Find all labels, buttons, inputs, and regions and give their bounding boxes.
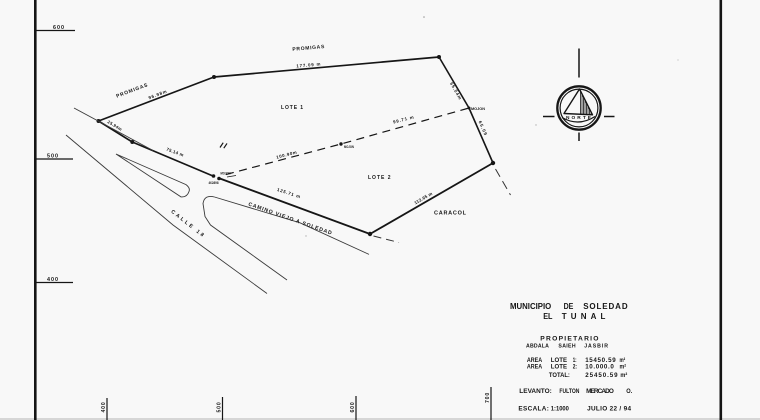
svg-text:JASBIR: JASBIR <box>584 343 608 349</box>
svg-text:462898: 462898 <box>209 181 219 185</box>
svg-text:MOJON: MOJON <box>471 106 485 111</box>
svg-text:2:: 2: <box>573 364 577 371</box>
svg-text:LOTE 2: LOTE 2 <box>368 175 391 181</box>
svg-text:PROPIETARIO: PROPIETARIO <box>540 336 598 343</box>
svg-text:FULTON: FULTON <box>559 388 579 395</box>
svg-text:JULIO 22 / 94: JULIO 22 / 94 <box>587 406 631 413</box>
svg-text:LOTE 1: LOTE 1 <box>281 105 303 111</box>
svg-text:500: 500 <box>47 153 59 159</box>
svg-text:500: 500 <box>216 401 222 412</box>
svg-text:ESCALA:: ESCALA: <box>518 406 549 413</box>
svg-text:SOLEDAD: SOLEDAD <box>583 302 628 311</box>
svg-text:600: 600 <box>53 25 65 31</box>
svg-text:TOTAL:: TOTAL: <box>549 372 570 379</box>
svg-text:LOTE: LOTE <box>551 364 567 371</box>
svg-text:m²: m² <box>620 372 627 379</box>
svg-text:m²: m² <box>620 364 627 371</box>
svg-text:600: 600 <box>350 401 356 412</box>
svg-text:DE: DE <box>564 302 574 311</box>
svg-text:MOJON: MOJON <box>344 145 354 149</box>
svg-text:O.: O. <box>626 388 632 395</box>
svg-text:AREA: AREA <box>527 364 543 371</box>
svg-text:SAIEH: SAIEH <box>558 343 575 349</box>
svg-text:25450.59: 25450.59 <box>585 372 618 379</box>
svg-text:CARACOL: CARACOL <box>434 211 467 217</box>
svg-text:MUNICIPIO: MUNICIPIO <box>510 302 551 311</box>
svg-text:EL: EL <box>543 312 552 321</box>
svg-text:MERCADO: MERCADO <box>586 388 614 395</box>
svg-text:400: 400 <box>101 401 107 412</box>
svg-text:LEVANTO:: LEVANTO: <box>519 388 552 395</box>
svg-text:10.000.0: 10.000.0 <box>585 364 614 371</box>
svg-text:1:1000: 1:1000 <box>551 406 569 413</box>
svg-text:400: 400 <box>47 277 59 283</box>
svg-text:ABDALA: ABDALA <box>526 343 549 349</box>
svg-text:MOJON: MOJON <box>221 172 231 176</box>
svg-text:700: 700 <box>485 392 491 403</box>
